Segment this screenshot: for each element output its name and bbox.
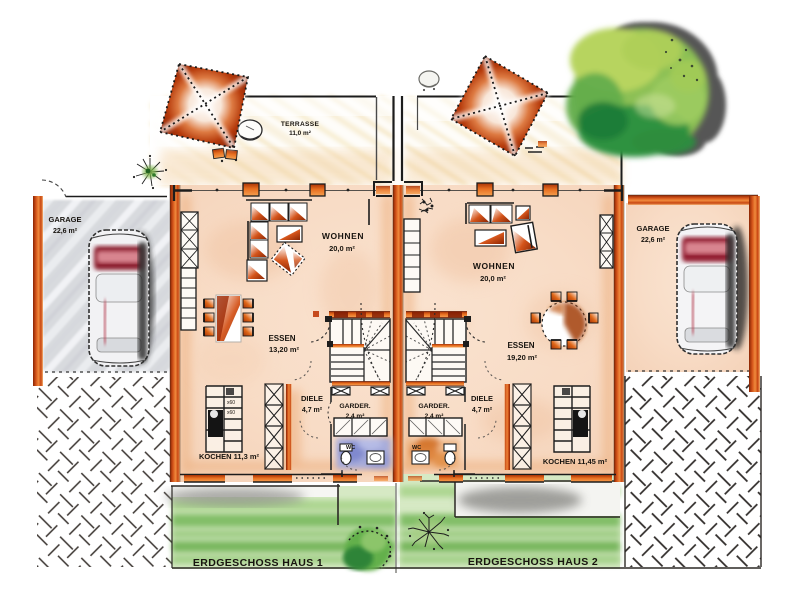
svg-text:22,6 m²: 22,6 m² [53,228,78,235]
svg-text:2,4 m²: 2,4 m² [346,413,366,420]
svg-text:ESSEN: ESSEN [507,341,534,350]
svg-text:GARAGE: GARAGE [49,215,82,224]
svg-text:WOHNEN: WOHNEN [473,261,515,271]
svg-text:13,20 m²: 13,20 m² [269,345,300,354]
svg-text:GARAGE: GARAGE [637,224,670,233]
svg-text:ERDGESCHOSS HAUS 1: ERDGESCHOSS HAUS 1 [193,557,323,569]
svg-text:WOHNEN: WOHNEN [322,231,364,241]
svg-text:WC: WC [346,445,355,451]
svg-text:TERRASSE: TERRASSE [281,121,320,128]
svg-text:ESSEN: ESSEN [268,334,295,343]
svg-text:20,0 m²: 20,0 m² [480,274,506,283]
svg-text:DIELE: DIELE [301,394,323,403]
svg-text:4,7 m²: 4,7 m² [302,407,323,414]
svg-text:22,6 m²: 22,6 m² [641,237,666,244]
svg-text:4,7 m²: 4,7 m² [472,407,493,414]
svg-text:GARDER.: GARDER. [339,403,370,410]
svg-text:DIELE: DIELE [471,394,493,403]
svg-text:20,0 m²: 20,0 m² [329,244,355,253]
svg-text:KOCHEN 11,3 m²: KOCHEN 11,3 m² [199,452,260,461]
svg-text:11,0 m²: 11,0 m² [289,130,311,137]
svg-text:x60: x60 [227,410,235,416]
svg-text:x60: x60 [227,400,235,406]
svg-text:WC: WC [412,445,421,451]
svg-text:KOCHEN 11,45 m²: KOCHEN 11,45 m² [543,457,608,466]
svg-text:19,20 m²: 19,20 m² [507,353,538,362]
svg-text:GARDER.: GARDER. [418,403,449,410]
svg-text:ERDGESCHOSS HAUS 2: ERDGESCHOSS HAUS 2 [468,556,598,568]
svg-text:2,4 m²: 2,4 m² [425,413,445,420]
